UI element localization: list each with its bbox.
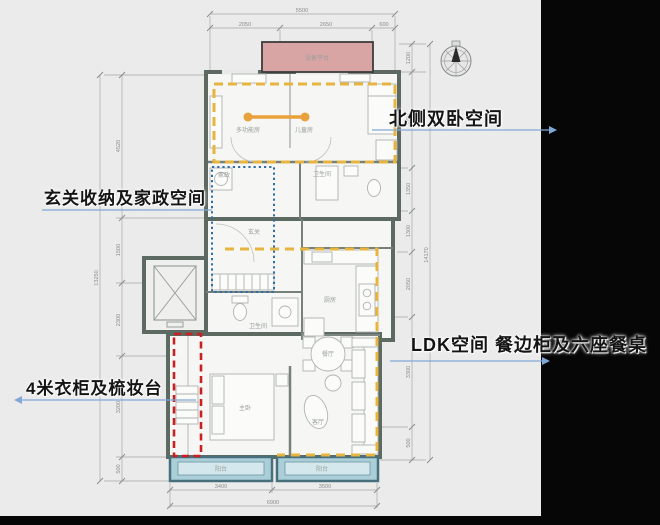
dim-right-seg5: 2050	[406, 278, 412, 290]
dim-right-seg6: 3300	[406, 366, 412, 378]
dim-right-overall: 14170	[424, 247, 430, 263]
right-black-panel	[541, 0, 660, 525]
label-balcony-left: 阳台	[215, 465, 227, 473]
dim-left-seg2: 1500	[116, 244, 122, 256]
label-kitchen: 厨房	[324, 296, 336, 304]
floorplan-page: 5500 2050 2650 600 4520 1500 2300 3200 5…	[0, 0, 660, 525]
label-bath-master: 卫生间	[249, 322, 267, 330]
dim-bottom-seg2: 3500	[319, 484, 331, 490]
dim-left-overall: 13250	[94, 270, 100, 286]
label-master: 主卧	[239, 404, 251, 412]
shoe-cabinet	[212, 274, 274, 290]
label-multi-function: 多功能房	[236, 126, 260, 134]
annotation-entry-storage: 玄关收纳及家政空间	[44, 184, 206, 209]
side-table	[325, 375, 341, 391]
dim-top-seg2: 2650	[320, 22, 332, 28]
label-living: 客厅	[312, 418, 324, 426]
label-equipment-platform: 设备平台	[305, 54, 329, 62]
elevator-shaft	[144, 258, 206, 332]
sofa	[352, 338, 378, 454]
dim-left-seg4: 3200	[116, 401, 122, 413]
floorplan-canvas: 5500 2050 2650 600 4520 1500 2300 3200 5…	[0, 0, 660, 525]
label-entry: 玄关	[248, 228, 260, 236]
label-kids-room: 儿童房	[295, 126, 313, 134]
dim-top-overall: 5500	[296, 8, 308, 14]
label-balcony-right: 阳台	[316, 465, 328, 473]
dim-right-seg7: 500	[406, 438, 412, 447]
annotation-ldk: LDK空间 餐边柜及六座餐桌	[411, 331, 647, 357]
label-bath-north: 卫生间	[313, 170, 331, 178]
dim-bottom-seg1: 3400	[215, 484, 227, 490]
dim-top-seg1: 2050	[239, 22, 251, 28]
dim-right-seg4: 1300	[406, 225, 412, 237]
annotation-wardrobe: 4米衣柜及梳妆台	[26, 374, 162, 399]
dim-left-seg5: 500	[116, 464, 122, 473]
washer-icon	[210, 168, 232, 190]
annotation-north-bedrooms: 北侧双卧空间	[389, 105, 503, 131]
dim-left-seg1: 4520	[116, 140, 122, 152]
label-dining: 餐厅	[322, 350, 334, 358]
label-housekeeping: 家政	[218, 171, 230, 179]
dim-right-seg3: 1350	[406, 183, 412, 195]
dim-left-seg3: 2300	[116, 314, 122, 326]
dim-bottom-overall: 6900	[267, 500, 279, 506]
dim-top-seg3: 600	[379, 22, 388, 28]
dim-right-seg1: 1200	[406, 52, 412, 64]
bottom-black-bar	[0, 516, 660, 525]
